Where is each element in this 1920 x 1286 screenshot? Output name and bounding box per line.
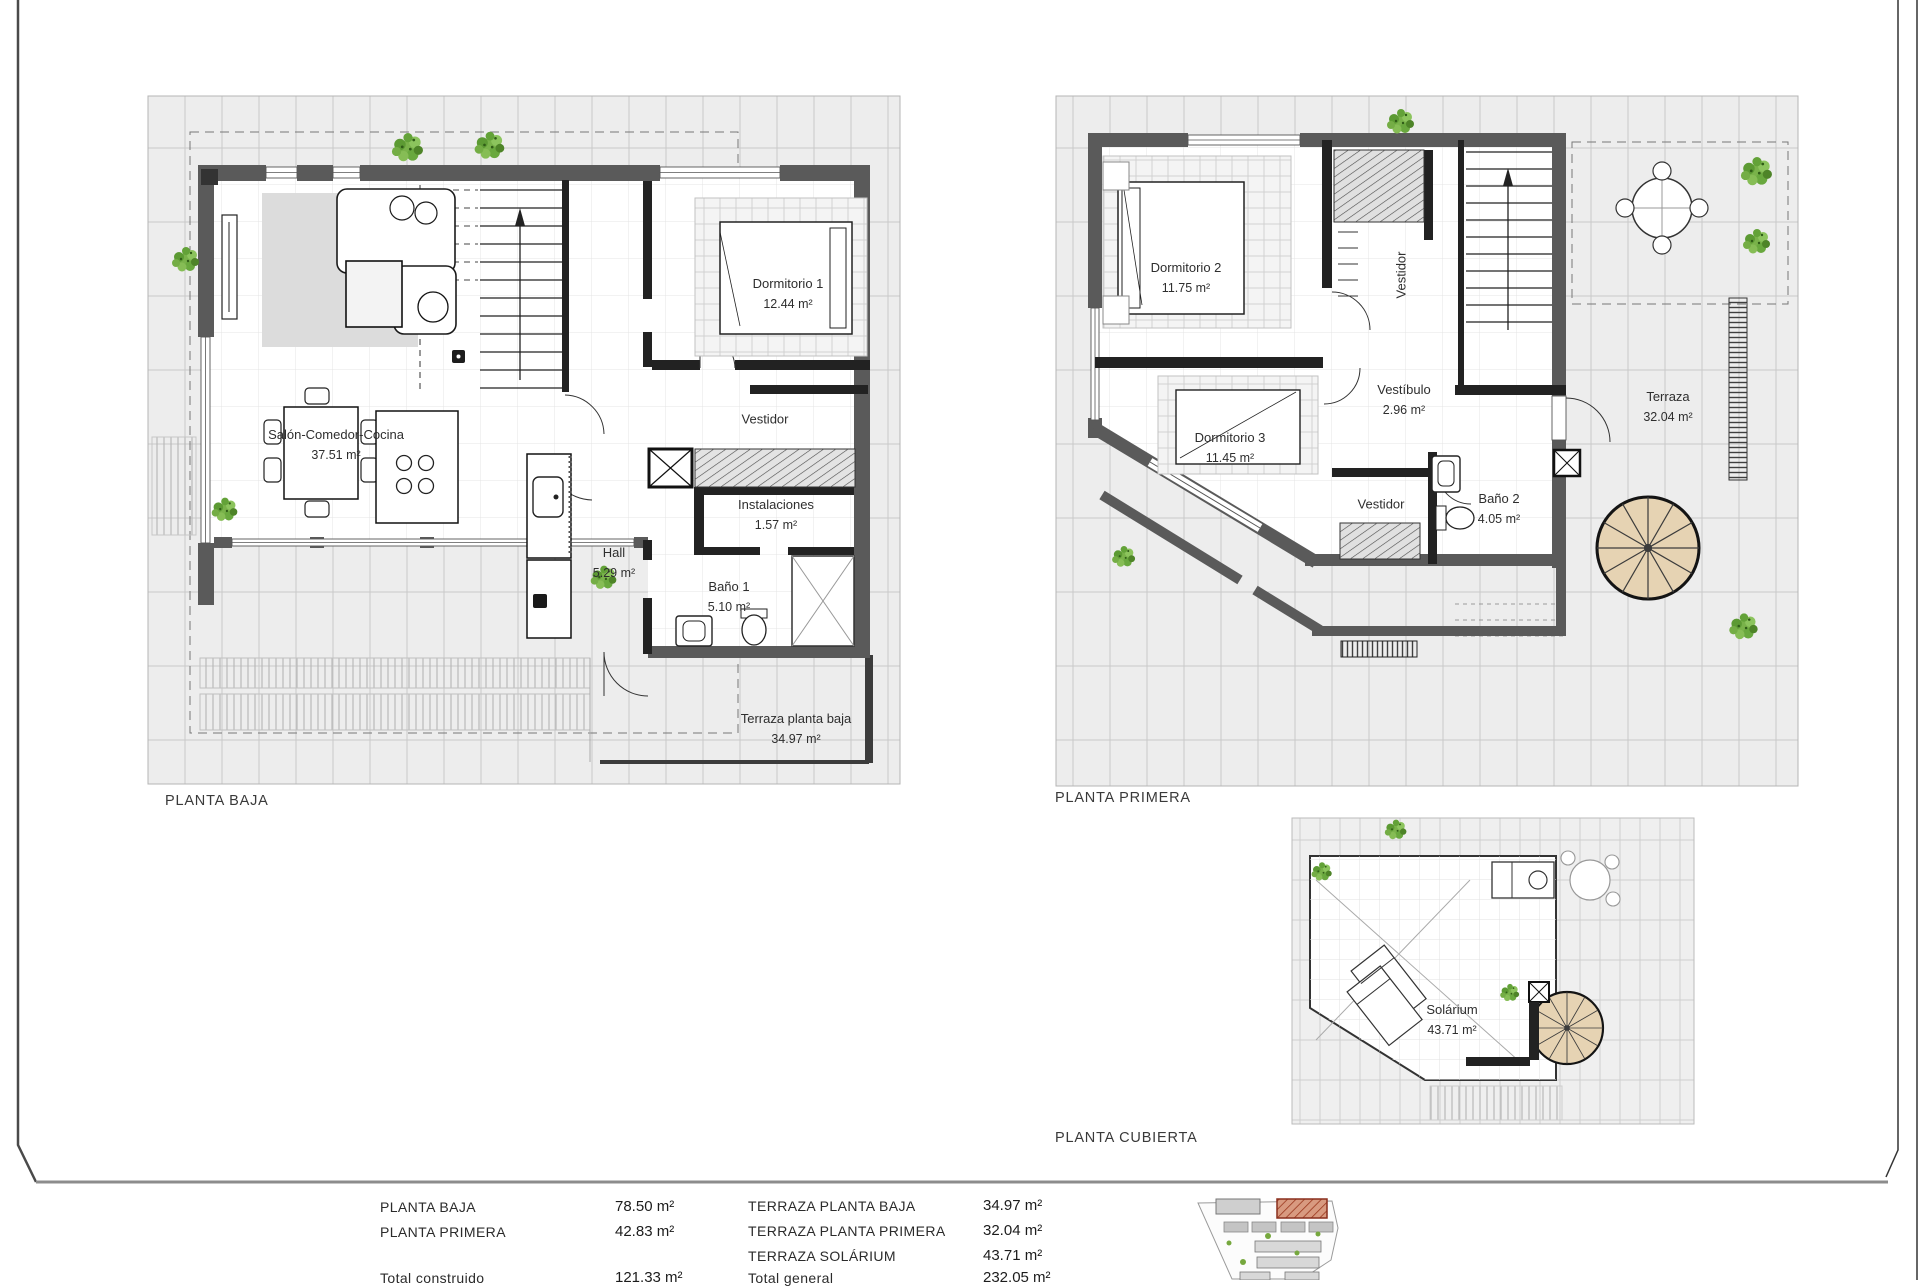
ground-floor-drawing [148, 96, 900, 784]
summary-label: TERRAZA SOLÁRIUM [748, 1248, 896, 1264]
summary-label: PLANTA PRIMERA [380, 1224, 506, 1240]
first-floor-drawing [1056, 96, 1798, 786]
room-label-bano2: Baño 2 4.05 m² [1478, 488, 1520, 530]
room-label-vestibulo: Vestíbulo 2.96 m² [1377, 379, 1431, 421]
summary-value: 34.97 m² [983, 1197, 1042, 1214]
room-label-dormitorio1: Dormitorio 1 12.44 m² [753, 273, 824, 315]
summary-value: 43.71 m² [983, 1247, 1042, 1264]
room-label-hall: Hall 5.29 m² [593, 542, 635, 584]
summary-value: 32.04 m² [983, 1222, 1042, 1239]
highlighted-villa [1277, 1199, 1327, 1218]
room-label-salon: Salón-Comedor-Cocina 37.51 m² [268, 424, 404, 466]
room-label-vestidor-gf: Vestidor [742, 409, 789, 430]
plan-sheet: Salón-Comedor-Cocina 37.51 m² Dormitorio… [0, 0, 1920, 1280]
caption-planta-baja: PLANTA BAJA [165, 793, 269, 809]
room-label-vestidor-sur: Vestidor [1358, 494, 1405, 515]
caption-planta-primera: PLANTA PRIMERA [1055, 790, 1191, 806]
summary-label: PLANTA BAJA [380, 1199, 476, 1215]
summary-value: 232.05 m² [983, 1269, 1051, 1286]
summary-value: 78.50 m² [615, 1198, 674, 1215]
summary-label: TERRAZA PLANTA PRIMERA [748, 1223, 946, 1239]
roof-plan-drawing [1292, 818, 1694, 1124]
room-label-dormitorio3: Dormitorio 3 11.45 m² [1195, 427, 1266, 469]
summary-label: TERRAZA PLANTA BAJA [748, 1198, 916, 1214]
caption-planta-cubierta: PLANTA CUBIERTA [1055, 1130, 1198, 1146]
room-label-bano1: Baño 1 5.10 m² [708, 576, 750, 618]
room-label-terraza-1f: Terraza 32.04 m² [1643, 386, 1692, 428]
plan-drawing [0, 0, 1920, 1280]
room-label-terraza-gf: Terraza planta baja 34.97 m² [741, 708, 852, 750]
room-label-solarium: Solárium 43.71 m² [1426, 999, 1477, 1041]
room-label-dormitorio2: Dormitorio 2 11.75 m² [1151, 257, 1222, 299]
summary-value: 42.83 m² [615, 1223, 674, 1240]
room-label-instalaciones: Instalaciones 1.57 m² [738, 494, 814, 536]
site-plan-inset [1198, 1199, 1338, 1280]
room-label-vestidor-norte: Vestidor [1391, 252, 1412, 299]
summary-label: Total construido [380, 1270, 484, 1286]
summary-label: Total general [748, 1270, 833, 1286]
summary-value: 121.33 m² [615, 1269, 683, 1286]
